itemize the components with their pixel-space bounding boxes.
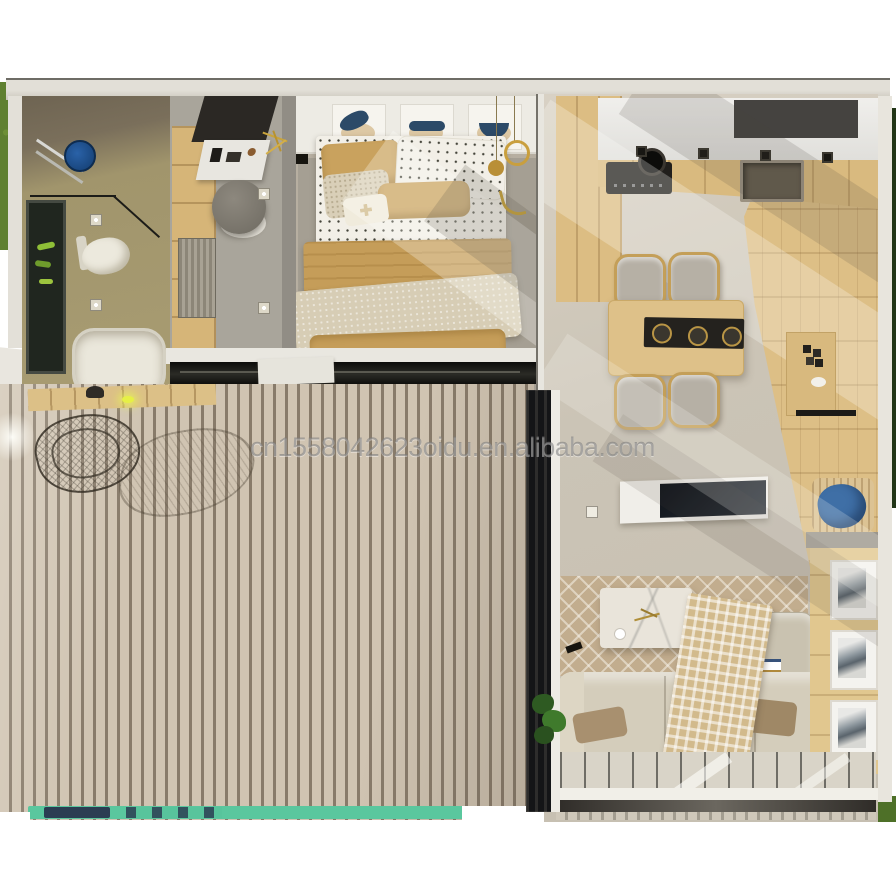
counter-fixture: [822, 152, 833, 163]
framed-art: [830, 700, 878, 760]
gold-pendant-light: [504, 140, 530, 166]
sliding-glass-door: [170, 362, 544, 384]
pool-navy-patch: [44, 807, 110, 818]
wall-desk: [786, 332, 836, 416]
glass-wall-sill: [554, 788, 878, 800]
floor-plan-render: cn1558042623oidu.en.alibaba.com: [0, 0, 896, 895]
toilet: [79, 234, 133, 278]
exterior-rail: [556, 800, 876, 812]
potted-plant: [532, 686, 572, 748]
tableware: [652, 323, 672, 343]
desk-items: [803, 345, 811, 353]
art-shape: [409, 121, 445, 131]
candle: [614, 628, 626, 640]
plant-leaf: [534, 726, 554, 744]
door-step: [258, 357, 335, 386]
shower-glass-panel: [113, 195, 160, 238]
deck-lamp: [86, 386, 104, 398]
bathroom: [22, 96, 170, 392]
plant-leaf: [39, 279, 53, 284]
wall-thermostat: [586, 506, 598, 518]
wardrobe: [191, 96, 278, 142]
gold-pendant-light: [488, 160, 504, 176]
tableware: [722, 326, 742, 346]
plant-leaf: [35, 260, 52, 268]
desk-paper: [811, 377, 826, 387]
doormat: [178, 238, 216, 318]
pool-navy-patch: [126, 807, 222, 818]
wall-handle: [796, 410, 856, 416]
marble-coffee-table: [600, 588, 692, 648]
shower-glass-panel: [30, 195, 116, 197]
deck-edge: [462, 806, 534, 820]
bathroom-window: [26, 200, 66, 374]
art-print: [838, 638, 866, 678]
bathtub: [72, 328, 166, 392]
console-decor: [210, 148, 223, 162]
pendant-wire: [496, 96, 497, 162]
plant-leaf: [37, 241, 56, 251]
watermark-text: cn1558042623oidu.en.alibaba.com: [250, 432, 655, 463]
console-decor: [247, 148, 257, 156]
deck-light: [122, 396, 134, 403]
floor-spotlight: [90, 214, 102, 226]
console-cabinet: [196, 140, 271, 180]
pendant-wire: [514, 96, 515, 142]
console-decor: [226, 152, 242, 162]
tableware: [688, 326, 708, 346]
shower-head: [64, 140, 96, 172]
table-runner: [644, 317, 745, 349]
floor-spotlight: [258, 188, 270, 200]
paver-strip: [556, 812, 876, 820]
nightstand-item: [296, 154, 308, 164]
floor-spotlight: [90, 299, 102, 311]
floor-spotlight: [258, 302, 270, 314]
deck-edge: [0, 812, 30, 820]
art-print: [838, 708, 866, 748]
